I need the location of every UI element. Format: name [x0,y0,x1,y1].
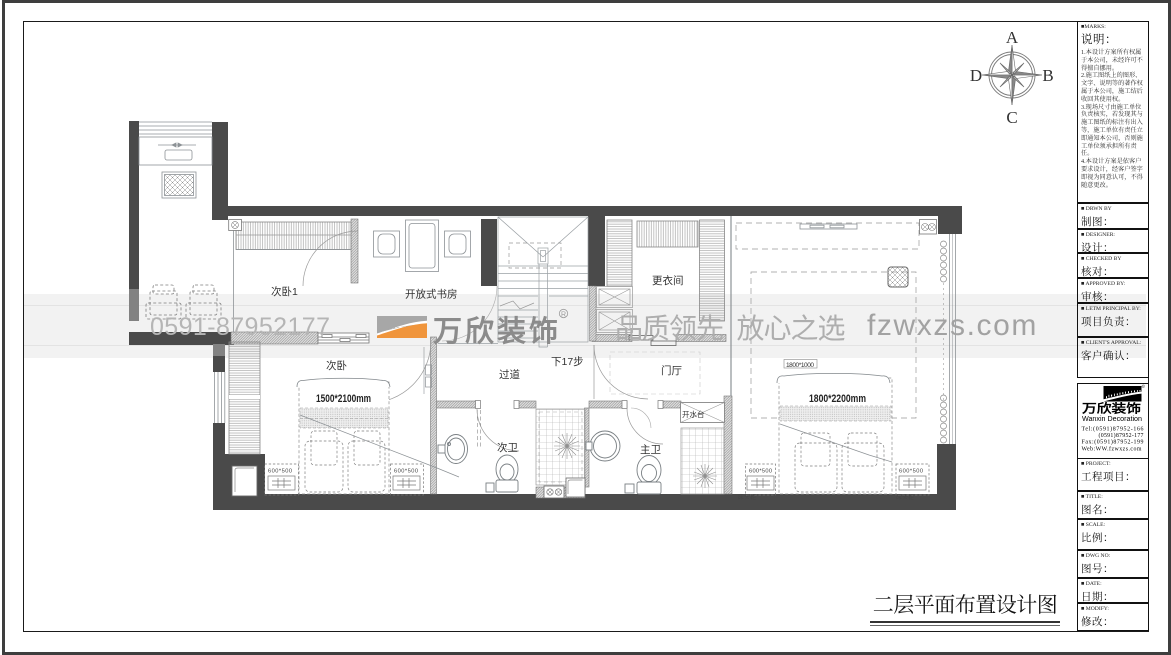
svg-text:过道: 过道 [499,368,520,381]
svg-text:R: R [1142,385,1144,388]
svg-text:C: C [1006,108,1017,127]
svg-text:开放式书房: 开放式书房 [405,288,458,301]
svg-text:(0591)87952-177: (0591)87952-177 [1099,432,1144,439]
svg-text:D: D [970,66,982,85]
svg-text:1800*2200mm: 1800*2200mm [809,393,866,405]
svg-text:床头柜: 床头柜 [738,493,756,501]
svg-text:B: B [1042,66,1053,85]
svg-text:A: A [1006,28,1019,47]
svg-text:次卧: 次卧 [326,359,347,372]
svg-text:Wanxin Decoration: Wanxin Decoration [1082,416,1142,423]
svg-text:Fax:(0591)87952-199: Fax:(0591)87952-199 [1082,439,1144,446]
svg-text:1500*2100mm: 1500*2100mm [316,393,371,405]
svg-text:开水台: 开水台 [682,409,705,419]
svg-text:R: R [561,312,566,319]
svg-text:600*500: 600*500 [268,469,292,475]
svg-text:次卧1: 次卧1 [271,285,298,298]
svg-text:更衣间: 更衣间 [652,274,684,287]
svg-text:次卫: 次卫 [497,441,518,454]
svg-text:Tel:(0591)87952-166: Tel:(0591)87952-166 [1082,426,1144,433]
svg-text:门厅: 门厅 [661,364,682,377]
svg-text:万欣装饰: 万欣装饰 [1081,401,1141,416]
svg-text:主卫: 主卫 [640,444,661,456]
svg-text:1800*1000: 1800*1000 [786,362,814,369]
svg-text:下17步: 下17步 [551,356,584,368]
svg-text:床头柜: 床头柜 [896,493,914,501]
svg-text:Web:WW.fzwxzs.com: Web:WW.fzwxzs.com [1082,446,1142,453]
svg-text:600*500: 600*500 [394,469,418,475]
svg-text:600*500: 600*500 [899,469,923,475]
svg-text:600*500: 600*500 [749,469,772,475]
